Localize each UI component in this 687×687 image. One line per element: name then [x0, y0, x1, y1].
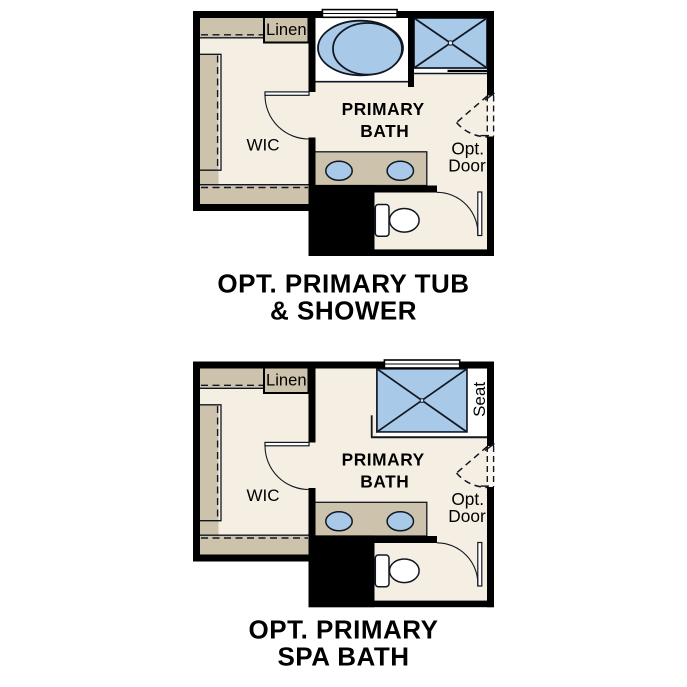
svg-text:OPT. PRIMARY TUB: OPT. PRIMARY TUB: [217, 268, 469, 298]
svg-text:Linen: Linen: [266, 371, 307, 390]
svg-text:Seat: Seat: [470, 382, 489, 417]
svg-text:PRIMARY: PRIMARY: [342, 449, 425, 469]
svg-text:SPA BATH: SPA BATH: [277, 642, 409, 672]
svg-text:BATH: BATH: [360, 121, 409, 141]
svg-text:WIC: WIC: [246, 486, 279, 505]
svg-text:Linen: Linen: [266, 20, 307, 39]
svg-text:OPT. PRIMARY: OPT. PRIMARY: [249, 614, 439, 644]
svg-text:Door: Door: [448, 506, 486, 526]
svg-text:WIC: WIC: [246, 136, 279, 155]
svg-text:BATH: BATH: [360, 471, 409, 491]
svg-text:& SHOWER: & SHOWER: [270, 295, 417, 325]
svg-text:Door: Door: [448, 156, 486, 176]
svg-text:PRIMARY: PRIMARY: [342, 99, 425, 119]
